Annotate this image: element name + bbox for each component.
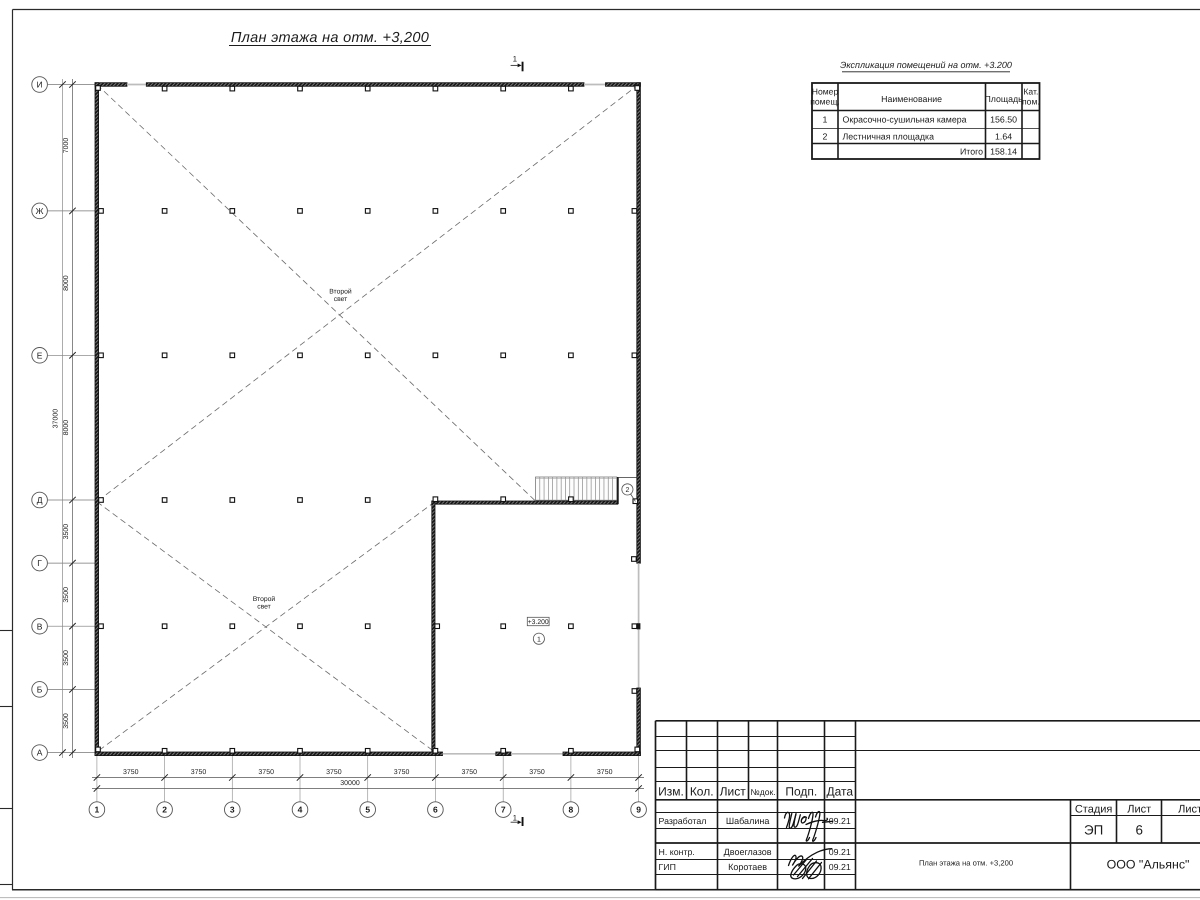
svg-text:6: 6 bbox=[433, 805, 438, 815]
svg-text:3750: 3750 bbox=[529, 769, 545, 776]
svg-text:свет: свет bbox=[257, 604, 271, 611]
svg-text:3750: 3750 bbox=[258, 769, 274, 776]
svg-text:Лестничная площадка: Лестничная площадка bbox=[843, 131, 935, 141]
svg-text:№док.: №док. bbox=[751, 787, 776, 797]
svg-text:Б: Б bbox=[37, 685, 43, 695]
svg-text:Коротаев: Коротаев bbox=[728, 862, 767, 872]
svg-text:3750: 3750 bbox=[462, 769, 478, 776]
svg-text:2: 2 bbox=[162, 805, 167, 815]
svg-text:Изм.: Изм. bbox=[658, 785, 684, 799]
svg-text:Кат.: Кат. bbox=[1023, 87, 1038, 97]
svg-text:7000: 7000 bbox=[63, 138, 70, 154]
svg-text:156.50: 156.50 bbox=[990, 115, 1017, 125]
svg-text:3: 3 bbox=[230, 805, 235, 815]
svg-text:3750: 3750 bbox=[597, 769, 613, 776]
svg-text:2: 2 bbox=[823, 131, 828, 141]
svg-text:Шабалина: Шабалина bbox=[726, 816, 769, 826]
svg-text:Номер: Номер bbox=[812, 87, 839, 97]
svg-text:Экспликация помещений на отм.: Экспликация помещений на отм. +3.200 bbox=[840, 60, 1012, 70]
svg-text:9: 9 bbox=[636, 805, 641, 815]
svg-text:Итого: Итого bbox=[960, 147, 983, 157]
svg-text:8000: 8000 bbox=[63, 420, 70, 436]
svg-text:1: 1 bbox=[513, 55, 518, 64]
svg-text:Н. контр.: Н. контр. bbox=[659, 847, 695, 857]
svg-text:Второй: Второй bbox=[253, 595, 276, 603]
svg-text:пом.: пом. bbox=[1022, 97, 1040, 107]
svg-text:Е: Е bbox=[37, 350, 43, 360]
svg-text:1.64: 1.64 bbox=[995, 131, 1012, 141]
svg-text:Окрасочно-сушильная камера: Окрасочно-сушильная камера bbox=[843, 115, 967, 125]
svg-text:Разработал: Разработал bbox=[659, 816, 707, 826]
svg-text:3750: 3750 bbox=[191, 769, 207, 776]
svg-text:3500: 3500 bbox=[63, 587, 70, 603]
svg-text:8000: 8000 bbox=[63, 275, 70, 291]
svg-text:8: 8 bbox=[569, 805, 574, 815]
svg-text:30000: 30000 bbox=[340, 780, 360, 787]
svg-text:3750: 3750 bbox=[123, 769, 139, 776]
svg-text:помещ.: помещ. bbox=[810, 97, 840, 107]
svg-text:Дата: Дата bbox=[827, 785, 854, 799]
svg-text:Кол.: Кол. bbox=[690, 785, 714, 799]
svg-text:6: 6 bbox=[1135, 822, 1142, 837]
svg-text:Второй: Второй bbox=[329, 288, 352, 296]
svg-text:5: 5 bbox=[365, 805, 370, 815]
svg-text:Ж: Ж bbox=[36, 206, 44, 216]
svg-text:Д: Д bbox=[37, 495, 43, 505]
svg-text:09.21: 09.21 bbox=[829, 862, 851, 872]
svg-text:+3.200: +3.200 bbox=[528, 619, 549, 626]
svg-text:А: А bbox=[37, 748, 43, 758]
svg-text:свет: свет bbox=[334, 296, 348, 303]
svg-text:Стадия: Стадия bbox=[1075, 803, 1113, 815]
svg-text:Листов: Листов bbox=[1178, 803, 1200, 815]
svg-text:Подп.: Подп. bbox=[785, 785, 817, 799]
svg-text:158.14: 158.14 bbox=[990, 147, 1017, 157]
svg-text:1: 1 bbox=[537, 637, 541, 644]
svg-text:Площадь: Площадь bbox=[984, 94, 1023, 104]
svg-text:3750: 3750 bbox=[326, 769, 342, 776]
svg-text:Наименование: Наименование bbox=[881, 94, 942, 104]
svg-text:7: 7 bbox=[501, 805, 506, 815]
svg-text:1: 1 bbox=[95, 805, 100, 815]
svg-text:ГИП: ГИП bbox=[659, 862, 676, 872]
svg-text:Двоеглазов: Двоеглазов bbox=[724, 847, 772, 857]
svg-text:3500: 3500 bbox=[63, 524, 70, 540]
svg-text:1: 1 bbox=[513, 813, 518, 822]
svg-text:3500: 3500 bbox=[63, 713, 70, 729]
svg-text:Г: Г bbox=[37, 558, 42, 568]
svg-text:Лист: Лист bbox=[1127, 803, 1151, 815]
svg-text:План этажа на отм. +3,200: План этажа на отм. +3,200 bbox=[231, 30, 429, 46]
svg-text:В: В bbox=[37, 621, 43, 631]
svg-text:И: И bbox=[37, 80, 43, 90]
svg-text:37000: 37000 bbox=[53, 409, 60, 429]
svg-text:4: 4 bbox=[298, 805, 303, 815]
svg-text:ООО "Альянс": ООО "Альянс" bbox=[1107, 858, 1190, 872]
svg-text:ЭП: ЭП bbox=[1084, 822, 1103, 837]
svg-text:1: 1 bbox=[823, 115, 828, 125]
svg-text:3750: 3750 bbox=[394, 769, 410, 776]
svg-text:2: 2 bbox=[625, 487, 629, 494]
svg-text:3500: 3500 bbox=[63, 650, 70, 666]
svg-text:Лист: Лист bbox=[720, 785, 747, 799]
svg-text:План этажа на отм. +3,200: План этажа на отм. +3,200 bbox=[919, 859, 1013, 868]
